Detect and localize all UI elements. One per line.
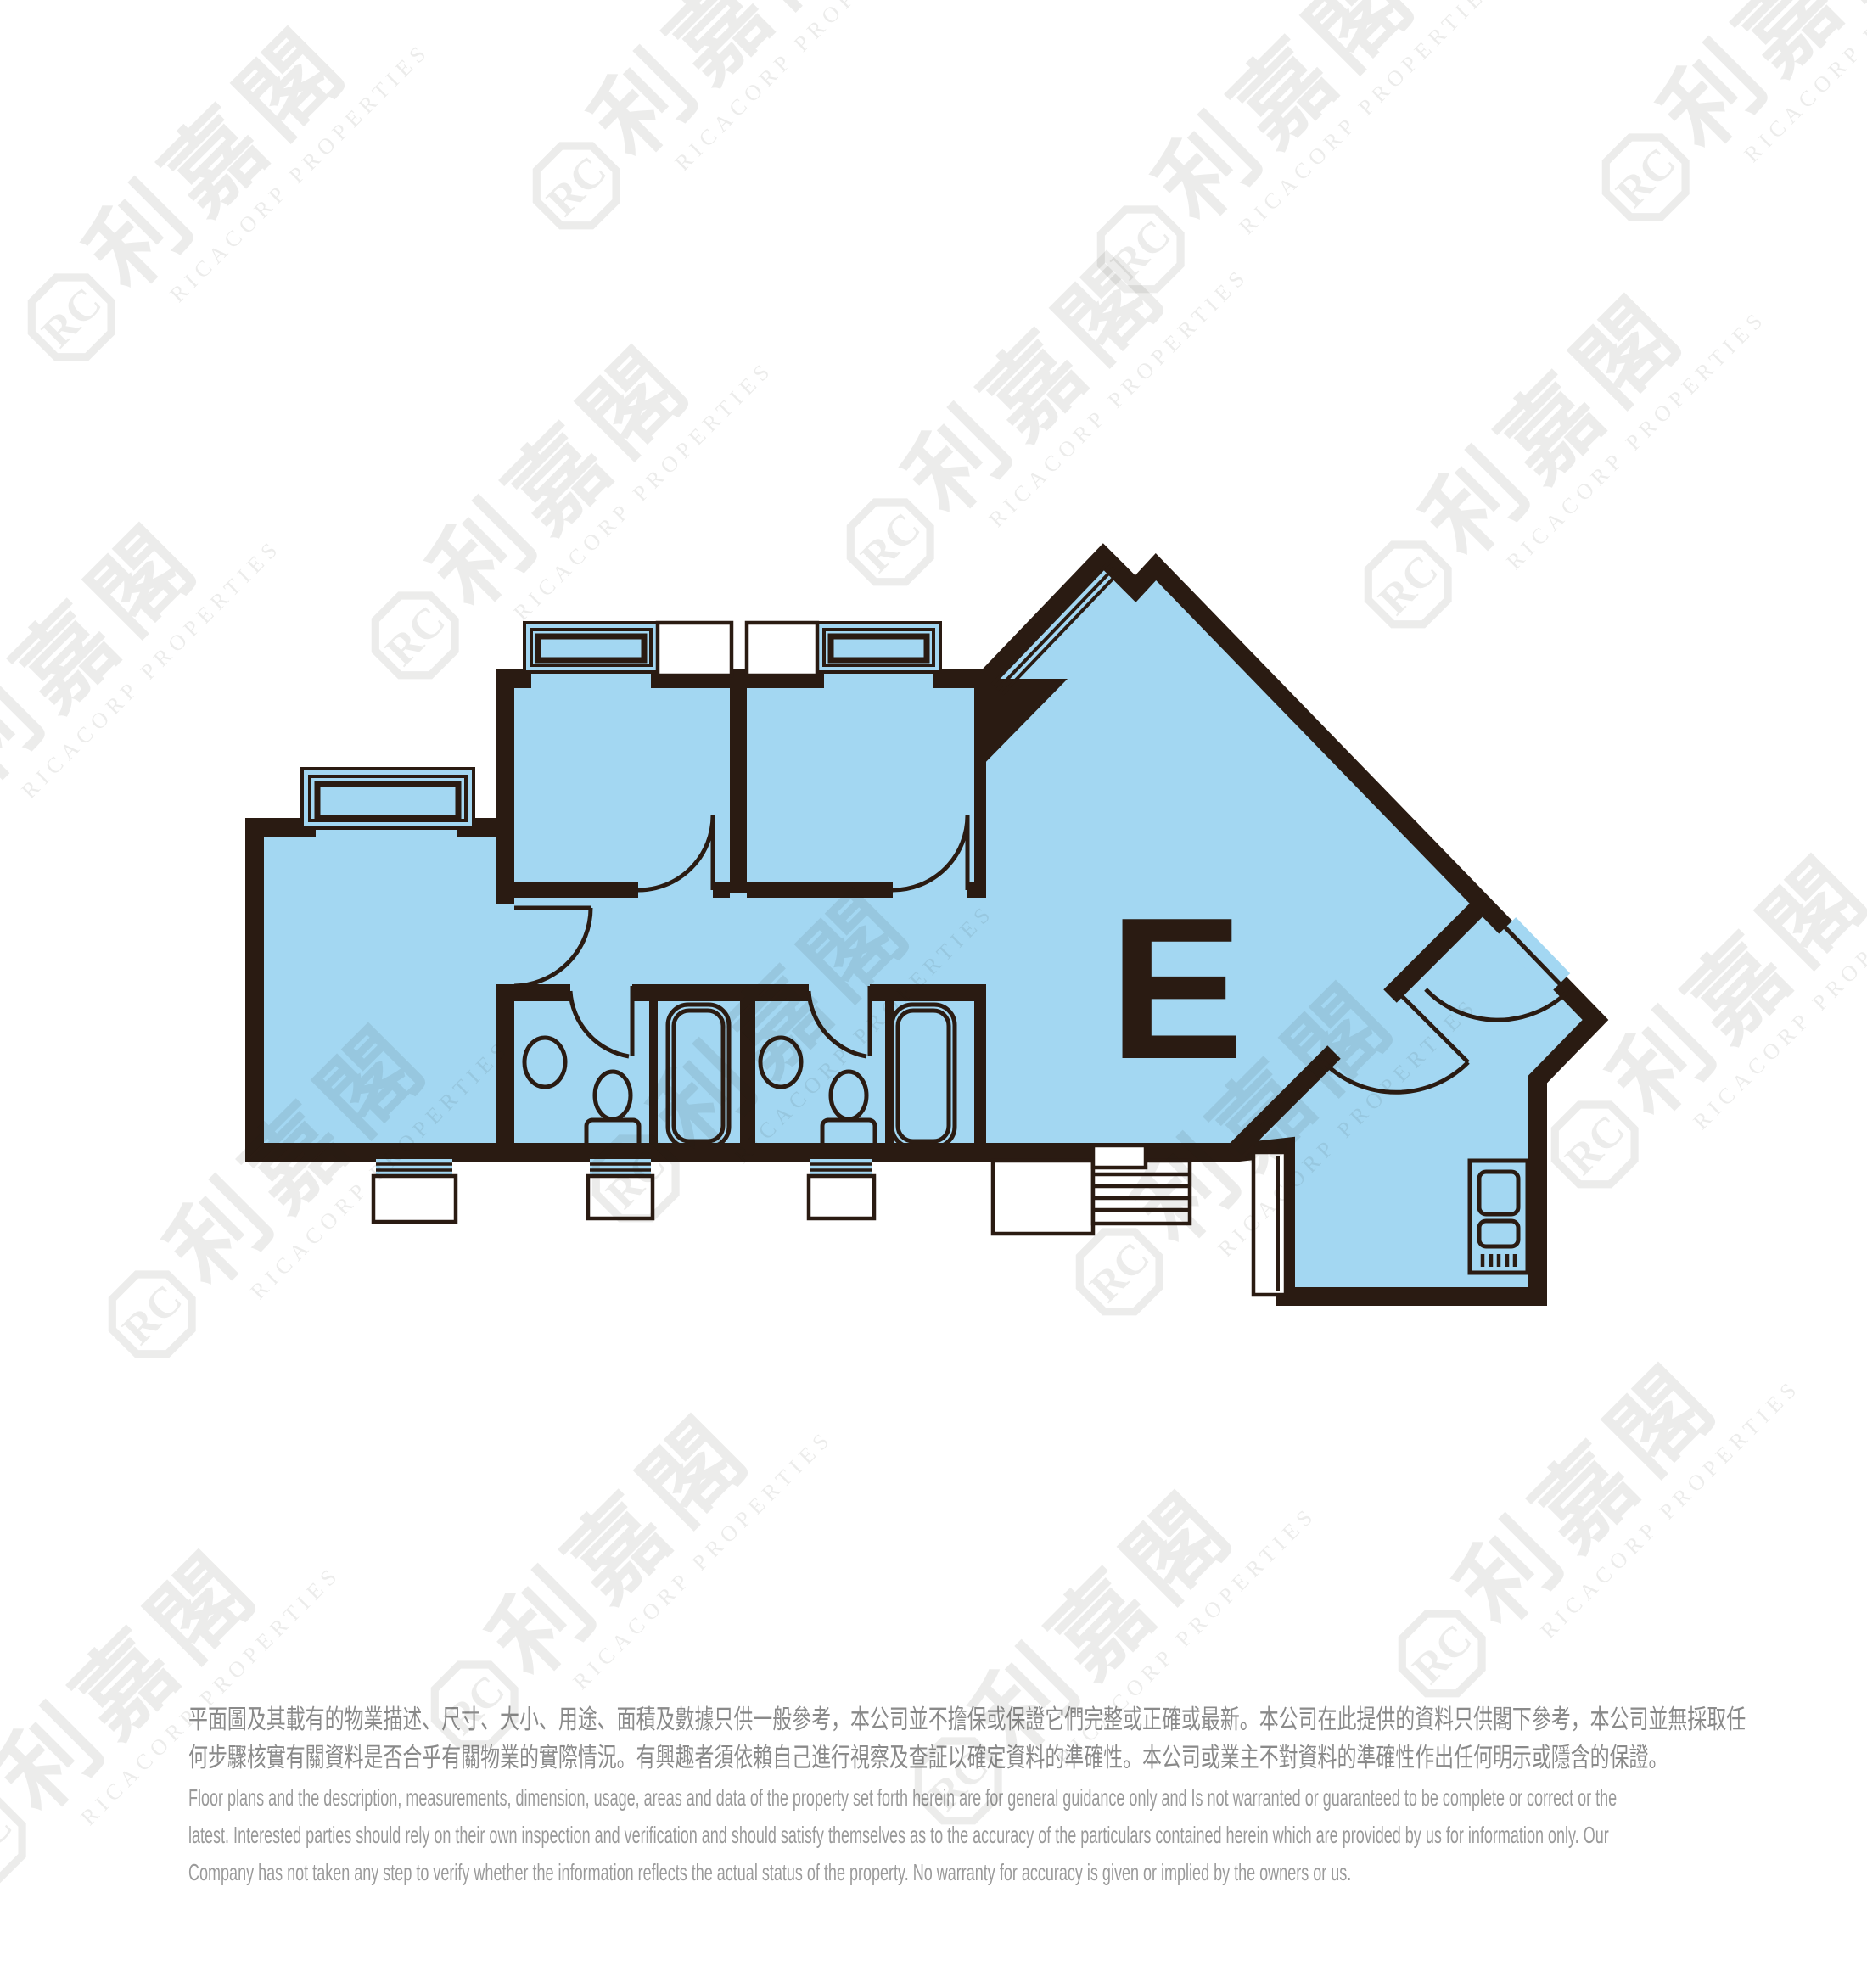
light-well — [1253, 1152, 1286, 1295]
unit-label: E — [1109, 876, 1244, 1101]
exterior-boxes — [658, 623, 817, 675]
disclaimer-zh-line2: 何步驟核實有關資料是否合乎有關物業的實際情況。有興趣者須依賴自己進行視察及查証以… — [188, 1739, 1746, 1777]
disclaimer-en-line1: Floor plans and the description, measure… — [188, 1779, 1617, 1817]
floor-plan: E — [0, 0, 1867, 1867]
ac-platforms — [373, 1159, 874, 1222]
bay-window-master — [302, 769, 474, 828]
disclaimer-chinese: 平面圖及其載有的物業描述、尺寸、大小、用途、面積及數據只供一般參考，本公司並不擔… — [188, 1700, 1746, 1777]
disclaimer-zh-line1: 平面圖及其載有的物業描述、尺寸、大小、用途、面積及數據只供一般參考，本公司並不擔… — [188, 1700, 1746, 1739]
disclaimer-en-line3: Company has not taken any step to verify… — [188, 1854, 1617, 1891]
bedroom3-window — [817, 623, 940, 672]
refrigerator-icon — [1470, 1161, 1528, 1273]
bedroom2-window — [524, 623, 658, 672]
disclaimer-english: Floor plans and the description, measure… — [188, 1779, 1617, 1891]
disclaimer-en-line2: latest. Interested parties should rely o… — [188, 1817, 1617, 1854]
